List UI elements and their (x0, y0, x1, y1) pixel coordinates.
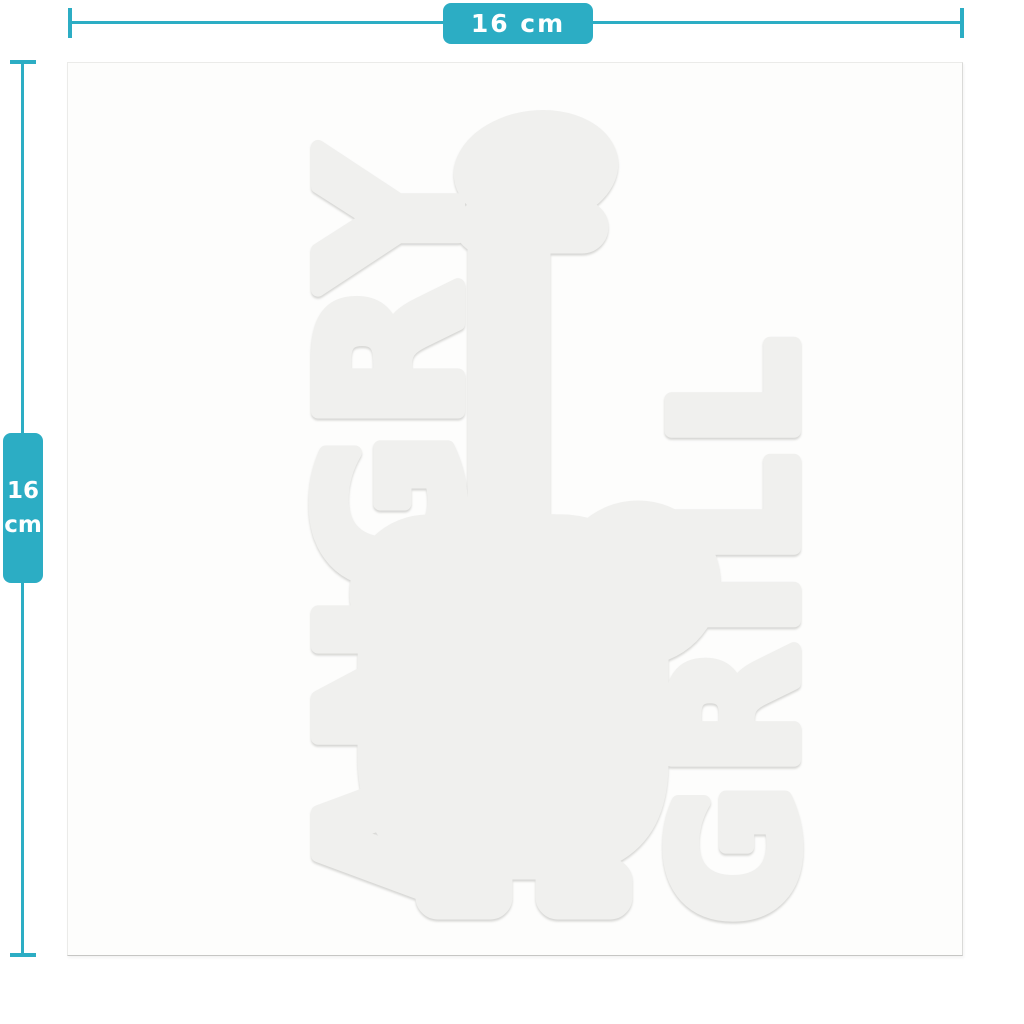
height-dimension-endcap-bottom (10, 953, 36, 957)
height-dimension-badge: 16 cm (3, 433, 43, 583)
width-dimension-label: 16 cm (471, 9, 565, 38)
width-dimension-badge: 16 cm (443, 3, 593, 44)
width-dimension-endcap-right (960, 8, 964, 38)
height-dimension-unit: cm (4, 508, 42, 543)
decal-silhouette: ANGRY GRILL (68, 63, 962, 955)
decal-sheet: ANGRY GRILL (67, 62, 963, 956)
width-dimension-endcap-left (68, 8, 72, 38)
height-dimension-value: 16 (7, 474, 39, 509)
height-dimension-endcap-top (10, 60, 36, 64)
